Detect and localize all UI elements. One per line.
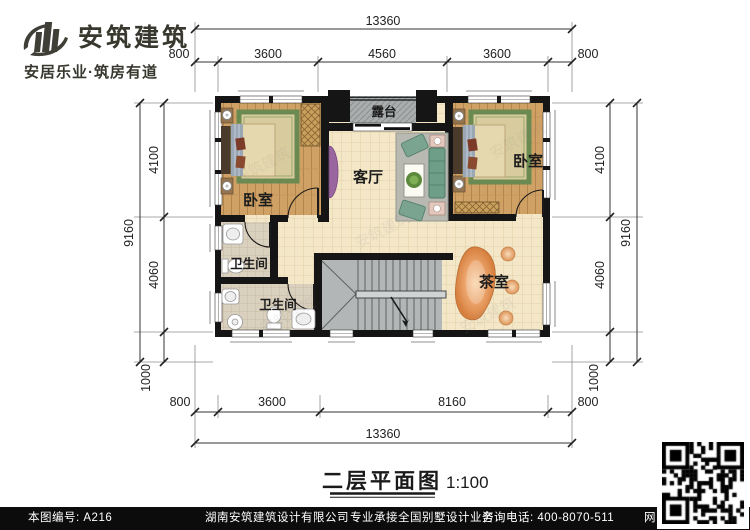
qr-code xyxy=(657,437,749,529)
room-label-bedroom-left: 卧室 xyxy=(243,191,273,209)
dim-bottom-eave-right: 800 xyxy=(578,395,599,409)
sheet-number: 本图编号: A216 xyxy=(28,507,112,530)
qr-canvas xyxy=(662,442,744,524)
caption-title: 二层平面图 xyxy=(322,470,442,493)
room-label-living: 客厅 xyxy=(352,168,383,186)
dim-bottom-seg-1: 3600 xyxy=(258,395,286,409)
dim-top-seg-2: 4560 xyxy=(368,47,396,61)
wardrobe xyxy=(455,202,499,213)
dim-left-seg-2: 4060 xyxy=(147,261,161,289)
dim-top-total: 13360 xyxy=(366,14,401,28)
caption: 二层平面图 1:100 xyxy=(322,470,489,497)
dim-top-seg-3: 3600 xyxy=(483,47,511,61)
room-label-bedroom-right: 卧室 xyxy=(513,152,543,170)
dim-bottom-eave-left: 800 xyxy=(170,395,191,409)
title-bar: 本图编号: A216 湖南安筑建筑设计有限公司 专业承接全国别墅设计业务 咨询电… xyxy=(0,507,750,530)
dim-top-eave-left: 800 xyxy=(169,47,190,61)
dim-left-total: 9160 xyxy=(122,219,136,247)
terrace-column-left xyxy=(328,90,350,122)
floor-plan: 13360 800 3600 4560 3600 800 9160 4100 4… xyxy=(0,0,750,505)
staircase xyxy=(322,260,446,330)
service-slogan: 专业承接全国别墅设计业务 xyxy=(350,507,494,530)
wardrobe xyxy=(301,104,320,146)
dim-right-seg-3: 1000 xyxy=(587,364,601,392)
dim-right-total: 9160 xyxy=(619,219,633,247)
dim-top-eave-right: 800 xyxy=(578,47,599,61)
bed-headboard xyxy=(221,126,231,174)
dim-left-seg-3: 1000 xyxy=(139,364,153,392)
dim-left-seg-1: 4100 xyxy=(147,146,161,174)
company-name: 湖南安筑建筑设计有限公司 xyxy=(205,507,349,530)
plant xyxy=(410,176,419,185)
sliding-door xyxy=(353,123,412,131)
dim-top-seg-1: 3600 xyxy=(254,47,282,61)
stair-handrail xyxy=(356,291,446,298)
bed-headboard xyxy=(453,127,463,174)
web-char: 网 xyxy=(644,507,656,530)
dim-right-seg-1: 4100 xyxy=(593,146,607,174)
room-label-tea: 茶室 xyxy=(479,273,509,291)
room-label-terrace: 露台 xyxy=(371,104,396,119)
caption-scale: 1:100 xyxy=(446,473,489,492)
drawing-sheet: 安筑建筑 安居乐业·筑房有道 xyxy=(0,0,750,530)
room-label-bath-upper: 卫生间 xyxy=(230,256,268,271)
phone-number: 咨询电话: 400-8070-511 xyxy=(482,507,614,530)
dim-bottom-total: 13360 xyxy=(366,427,401,441)
stool xyxy=(501,247,515,261)
dim-right-seg-2: 4060 xyxy=(593,261,607,289)
terrace-column-right xyxy=(416,90,437,122)
dim-bottom-seg-2: 8160 xyxy=(438,395,466,409)
